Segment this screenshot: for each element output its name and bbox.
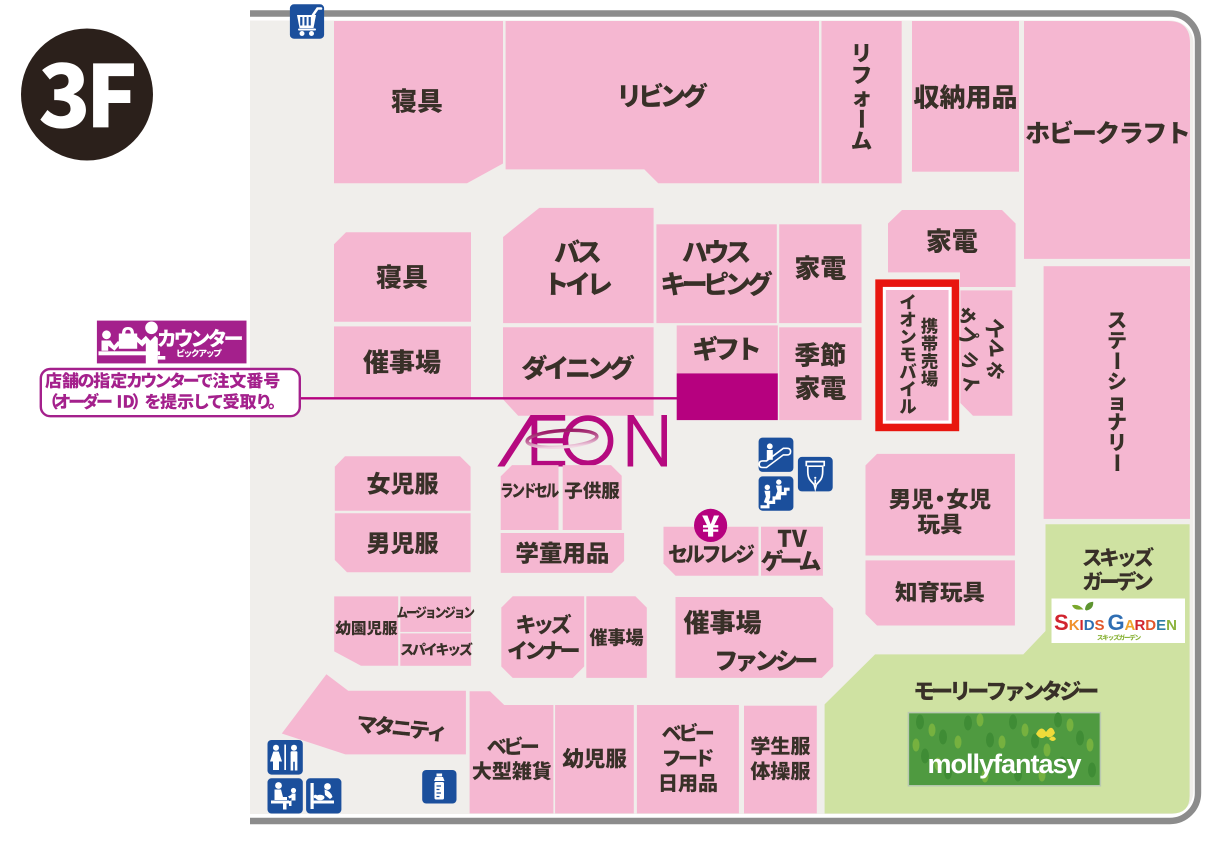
svg-text:R: R	[1135, 617, 1146, 634]
svg-text:S: S	[1054, 610, 1069, 635]
svg-text:K: K	[1069, 617, 1080, 634]
svg-text:E: E	[1156, 617, 1166, 634]
svg-text:mollyfantasy: mollyfantasy	[927, 749, 1081, 779]
svg-text:D: D	[1084, 617, 1095, 634]
svg-text:G: G	[1108, 610, 1125, 635]
svg-text:N: N	[1166, 617, 1177, 634]
svg-text:D: D	[1145, 617, 1156, 634]
svg-text:S: S	[1095, 617, 1105, 634]
